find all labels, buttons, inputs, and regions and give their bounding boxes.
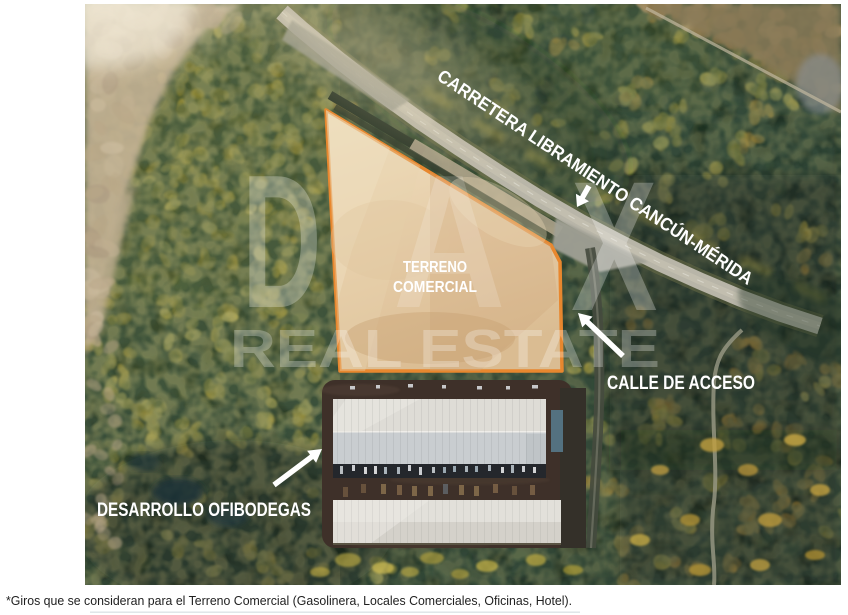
svg-text:*Giros que se consideran para: *Giros que se consideran para el Terreno…	[6, 593, 572, 608]
svg-text:D: D	[242, 135, 322, 348]
svg-text:A: A	[393, 135, 506, 347]
svg-text:TERRENO: TERRENO	[403, 259, 467, 276]
svg-text:DESARROLLO OFIBODEGAS: DESARROLLO OFIBODEGAS	[97, 500, 311, 521]
svg-text:CALLE DE ACCESO: CALLE DE ACCESO	[607, 373, 755, 394]
svg-text:COMERCIAL: COMERCIAL	[393, 279, 477, 296]
